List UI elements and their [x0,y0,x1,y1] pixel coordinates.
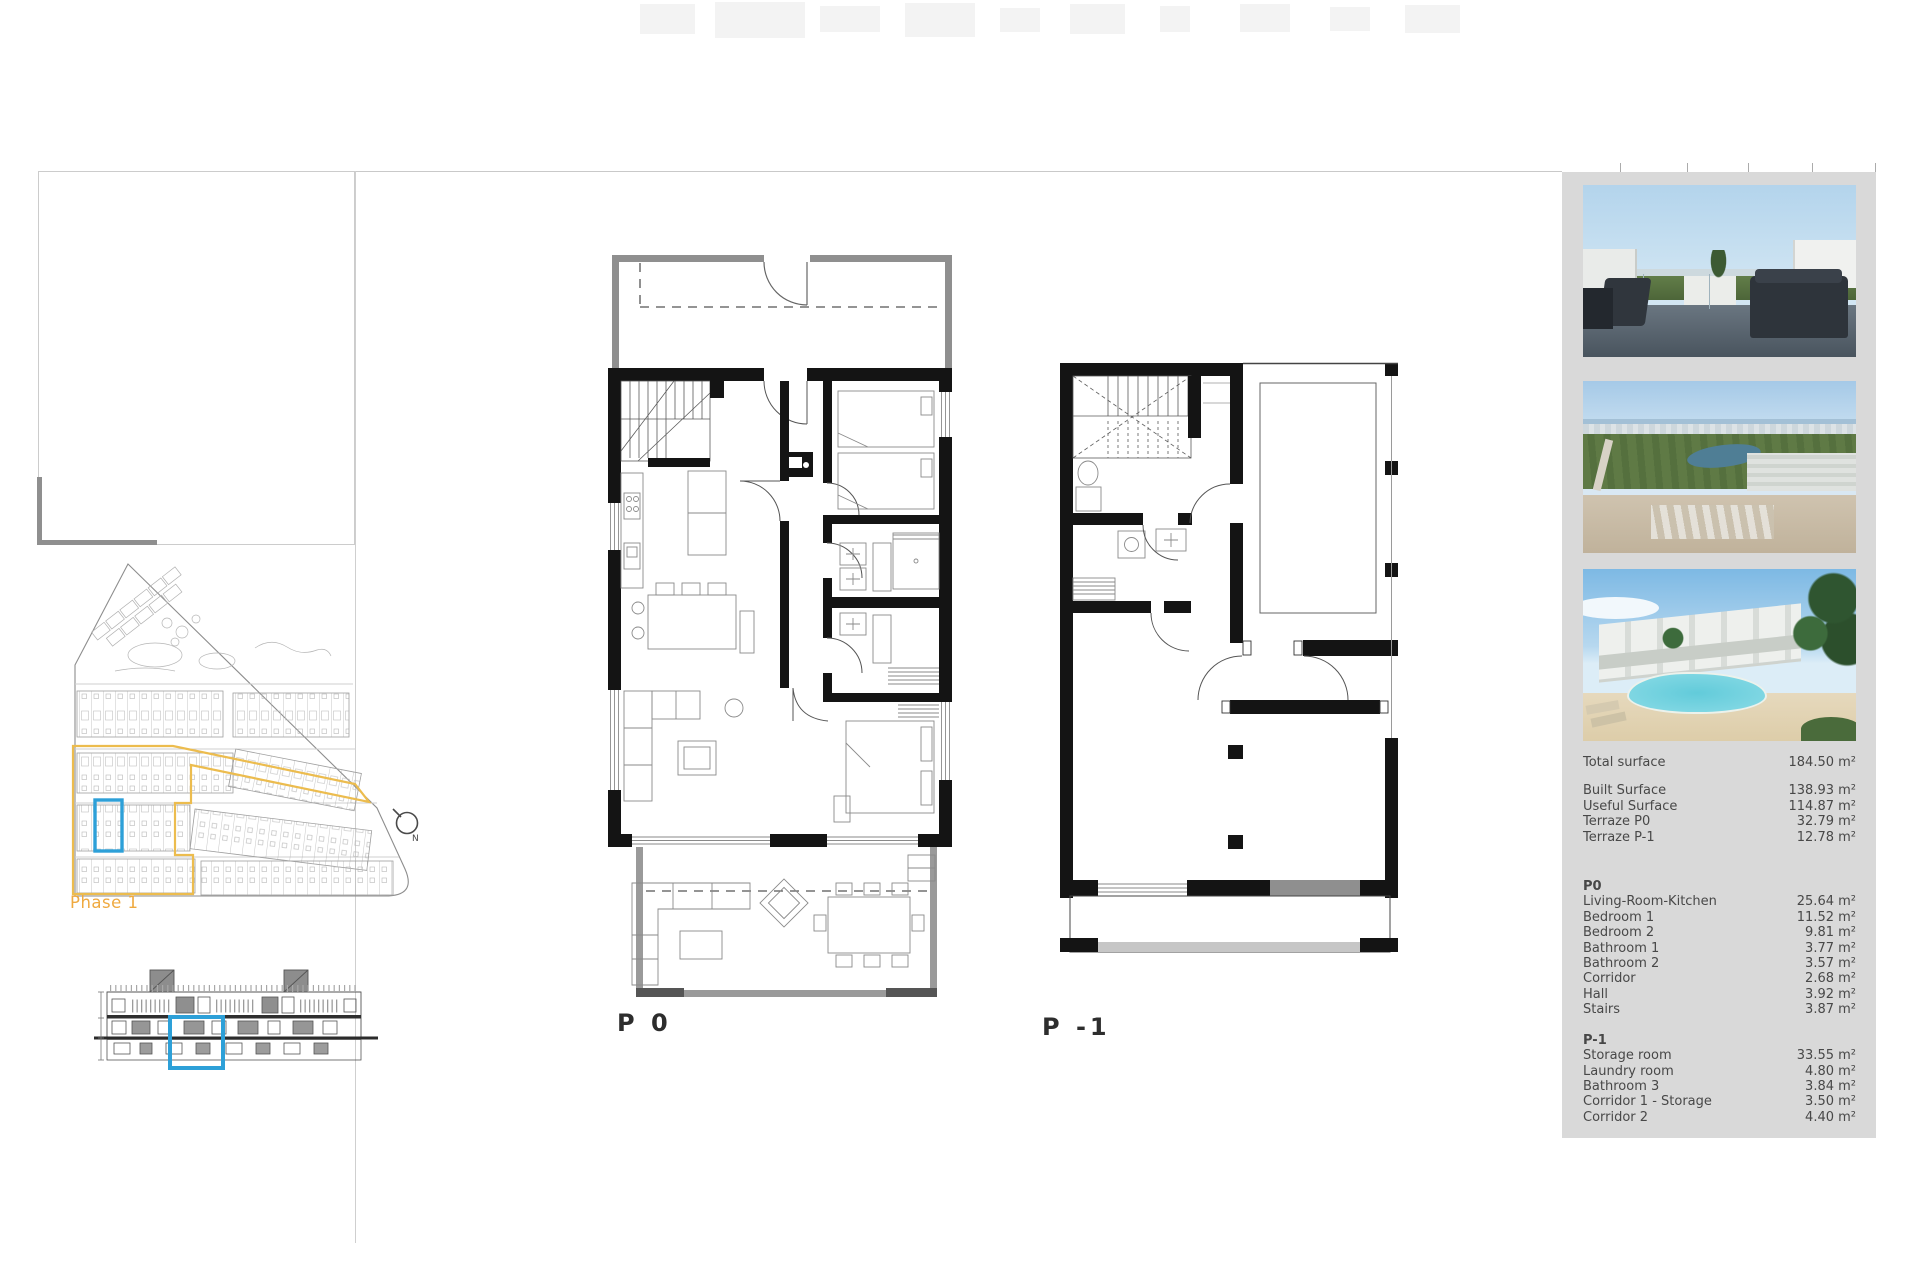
room-label: Corridor 2 [1583,1110,1648,1125]
surface-value: 114.87 m² [1789,799,1857,814]
surface-row: Terraze P0 32.79 m² [1583,814,1856,829]
phase-label: Phase 1 [70,893,139,912]
info-panel: Total surface 184.50 m² Built Surface 13… [1562,172,1876,1138]
p1-outer-walls [1060,363,1398,898]
room-value: 3.87 m² [1805,1002,1856,1017]
room-value: 3.92 m² [1805,987,1856,1002]
room-row: Storage room 33.55 m² [1583,1048,1856,1063]
outdoor-sofa [1750,276,1848,338]
p0-terrace-furniture [632,855,935,985]
room-row: Corridor 1 - Storage 3.50 m² [1583,1094,1856,1109]
p0-living-room [624,691,743,801]
room-value: 4.80 m² [1805,1064,1856,1079]
photo-pool-buildings [1583,569,1856,741]
photo-aerial-coast [1583,381,1856,553]
room-row: Stairs 3.87 m² [1583,1002,1856,1017]
room-row: Bedroom 2 9.81 m² [1583,925,1856,940]
p1-plan-label: P -1 [1042,1013,1111,1041]
room-value: 11.52 m² [1797,910,1856,925]
p0-partitions [780,381,952,702]
rule-tick [1812,163,1813,172]
p1-room-table: P-1 Storage room 33.55 m² Laundry room 4… [1583,1033,1856,1125]
p1-lower-terrace [1060,896,1398,952]
p1-heading: P-1 [1583,1033,1856,1048]
room-value: 2.68 m² [1805,971,1856,986]
box-corner-mark [37,477,42,545]
room-label: Stairs [1583,1002,1620,1017]
outdoor-table [1583,288,1613,329]
total-surface-value: 184.50 m² [1789,755,1857,770]
surface-label: Useful Surface [1583,799,1677,814]
site-plan: N [55,553,435,915]
room-row: Living-Room-Kitchen 25.64 m² [1583,894,1856,909]
surface-row: Terraze P-1 12.78 m² [1583,830,1856,845]
room-row: Hall 3.92 m² [1583,987,1856,1002]
surface-row: Built Surface 138.93 m² [1583,783,1856,798]
p0-bedroom2 [834,705,939,822]
floor-plan-p1 [1048,353,1413,988]
dimension-line [98,992,104,1060]
room-row: Bedroom 1 11.52 m² [1583,910,1856,925]
room-row: Bathroom 3 3.84 m² [1583,1079,1856,1094]
p0-stairs [621,381,710,461]
room-row: Corridor 2.68 m² [1583,971,1856,986]
room-value: 3.57 m² [1805,956,1856,971]
room-value: 3.77 m² [1805,941,1856,956]
palm-cluster-right [1769,569,1856,686]
room-label: Corridor 1 - Storage [1583,1094,1712,1109]
room-label: Hall [1583,987,1608,1002]
room-label: Bathroom 2 [1583,956,1659,971]
floor-plan-p0 [588,243,973,1023]
p0-bottom-terrace-walls [636,847,937,997]
unit-rows [77,691,393,895]
p1-stairs [1073,376,1191,458]
surface-table: Total surface 184.50 m² Built Surface 13… [1583,755,1856,1125]
p0-bathroom2 [840,613,939,684]
room-label: Living-Room-Kitchen [1583,894,1717,909]
basement-storey [107,1040,361,1061]
p0-room-table: P0 Living-Room-Kitchen 25.64 m² Bedroom … [1583,879,1856,1018]
palm-left [1657,626,1690,654]
room-label: Bedroom 2 [1583,925,1654,940]
pool [1627,672,1768,714]
room-label: Bedroom 1 [1583,910,1654,925]
room-row: Bathroom 2 3.57 m² [1583,956,1856,971]
small-tree [1709,250,1728,281]
rule-tick [1875,163,1876,172]
room-value: 3.50 m² [1805,1094,1856,1109]
p1-storage-bottom-wall [1060,880,1398,896]
compass-north-label: N [412,834,419,844]
room-value: 4.40 m² [1805,1110,1856,1125]
empty-title-box [38,171,355,545]
p0-bathroom1 [840,533,939,591]
p1-lightwell [1260,383,1376,613]
room-label: Storage room [1583,1048,1672,1063]
p0-kitchen [621,471,754,653]
total-surface-row: Total surface 184.50 m² [1583,755,1856,770]
surface-value: 32.79 m² [1797,814,1856,829]
p1-laundry [1118,529,1186,558]
room-row: Corridor 2 4.40 m² [1583,1110,1856,1125]
building-cluster [91,567,189,651]
construction-blocks [1651,505,1774,539]
p0-bedroom1 [838,391,934,509]
surface-label: Terraze P-1 [1583,830,1655,845]
room-value: 3.84 m² [1805,1079,1856,1094]
room-row: Bathroom 1 3.77 m² [1583,941,1856,956]
white-village [1747,453,1856,491]
room-label: Corridor [1583,971,1636,986]
total-surface-label: Total surface [1583,755,1666,770]
north-compass-icon [393,809,418,834]
surface-row: Useful Surface 114.87 m² [1583,799,1856,814]
p0-terrace-dashed-line [640,263,938,307]
room-row: Laundry room 4.80 m² [1583,1064,1856,1079]
glass-railing-post [1709,274,1710,308]
room-value: 9.81 m² [1805,925,1856,940]
p0-heading: P0 [1583,879,1856,894]
plan-sheet: N Phase 1 [0,0,1920,1280]
surface-value: 12.78 m² [1797,830,1856,845]
p0-top-terrace-walls [612,255,952,368]
surface-value: 138.93 m² [1789,783,1857,798]
room-value: 33.55 m² [1797,1048,1856,1063]
sofa-cushion [1755,269,1842,283]
p1-door-arcs [1143,484,1348,700]
box-corner-mark [37,540,157,545]
rule-tick [1687,163,1688,172]
room-label: Laundry room [1583,1064,1674,1079]
p1-bathroom3 [1073,461,1115,600]
building-elevation [88,958,383,1093]
surface-label: Terraze P0 [1583,814,1650,829]
room-label: Bathroom 1 [1583,941,1659,956]
p0-plan-label: P 0 [617,1009,672,1037]
rule-tick [1748,163,1749,172]
city-strip [1583,424,1856,434]
bush [1801,717,1856,741]
room-value: 25.64 m² [1797,894,1856,909]
p1-partitions [1073,513,1192,613]
surface-label: Built Surface [1583,783,1666,798]
amenity-pools [115,615,331,671]
rule-tick [1620,163,1621,172]
room-label: Bathroom 3 [1583,1079,1659,1094]
photo-roof-terrace [1583,185,1856,357]
